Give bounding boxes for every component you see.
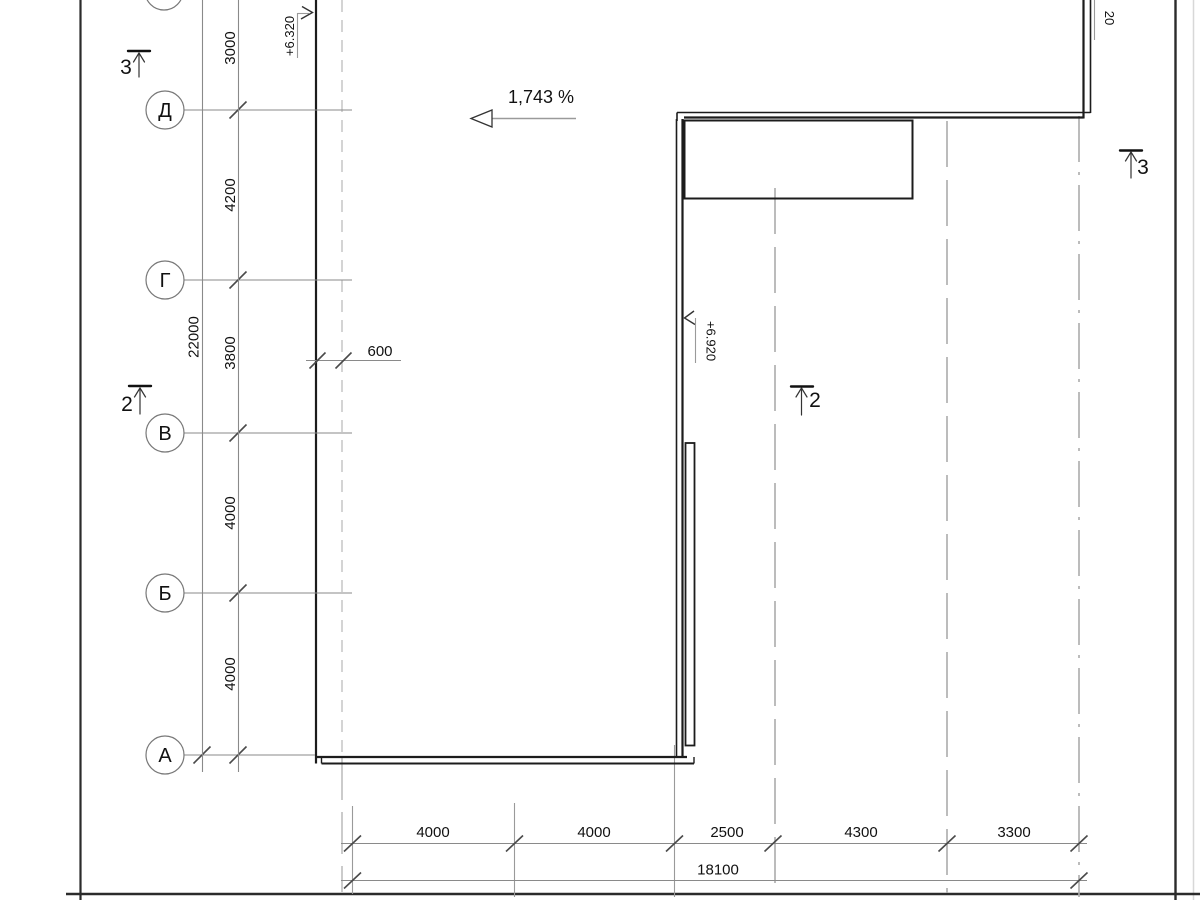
- axis-label-a: А: [158, 745, 172, 767]
- dim-bottom-4300: 4300: [844, 824, 877, 841]
- elevation-marks: +6.320 +6.920 20: [282, 0, 1117, 363]
- elevation-arrow-icon: [301, 7, 313, 20]
- dim-offset-600: 600: [367, 343, 392, 360]
- elevation-middle: +6.920: [685, 311, 719, 363]
- row-axes: Д Г В Б А: [145, 0, 352, 774]
- axis-label-d: Д: [158, 100, 172, 122]
- axis-circle-partial-top: [145, 0, 183, 10]
- elevation-top-right-value: 20: [1102, 11, 1117, 25]
- drawing-sheet: Д Г В Б А 3000 4200 3800 4000 4000 22000…: [0, 0, 1200, 900]
- elevation-middle-value: +6.920: [704, 321, 719, 361]
- dim-left-3000: 3000: [222, 31, 239, 64]
- pilaster-strip: [686, 443, 695, 746]
- offset-dimension-600: 600: [306, 343, 401, 369]
- dim-left-4000-b: 4000: [222, 657, 239, 690]
- sheet-frame: [66, 0, 1200, 900]
- dim-bottom-3300: 3300: [997, 824, 1030, 841]
- section-number: 2: [809, 389, 821, 412]
- section-marker-3-top-right: 3: [1120, 151, 1149, 180]
- axis-label-g: Г: [160, 270, 171, 292]
- section-markers: 3 2 2 3: [120, 51, 1149, 416]
- slope-arrow-icon: [471, 110, 492, 127]
- section-number: 3: [1137, 156, 1149, 179]
- left-dimension-chain: 3000 4200 3800 4000 4000 22000: [186, 0, 240, 772]
- dim-left-total-22000: 22000: [186, 316, 203, 358]
- dim-bottom-4000-a: 4000: [416, 824, 449, 841]
- dim-bottom-4000-b: 4000: [577, 824, 610, 841]
- axis-label-b: Б: [158, 583, 171, 605]
- slope-label: 1,743 %: [508, 87, 574, 107]
- section-marker-2-left: 2: [121, 386, 151, 416]
- extension-lines: [353, 745, 675, 897]
- dim-bottom-total-18100: 18100: [697, 862, 739, 879]
- roof-plan-drawing: Д Г В Б А 3000 4200 3800 4000 4000 22000…: [0, 0, 1200, 900]
- section-marker-3-top-left: 3: [120, 51, 150, 79]
- section-number: 2: [121, 393, 133, 416]
- elevation-arrow-icon: [685, 311, 696, 325]
- dim-left-4200: 4200: [222, 178, 239, 211]
- section-marker-2-middle: 2: [791, 387, 821, 416]
- building-outline: [315, 0, 1091, 764]
- elevation-left-value: +6.320: [282, 16, 297, 56]
- dashed-column-axes: [342, 0, 1079, 897]
- dim-left-4000-a: 4000: [222, 496, 239, 529]
- canopy-rect: [685, 121, 913, 199]
- bottom-dimension-chain: 4000 4000 2500 4300 3300 18100: [341, 824, 1088, 889]
- dim-left-3800: 3800: [222, 336, 239, 369]
- slope-annotation: 1,743 %: [471, 87, 576, 127]
- elevation-top-right-partial: 20: [1095, 0, 1118, 40]
- axis-label-v: В: [158, 423, 171, 445]
- section-number: 3: [120, 56, 132, 79]
- elevation-left: +6.320: [282, 7, 313, 59]
- dim-bottom-2500: 2500: [710, 824, 743, 841]
